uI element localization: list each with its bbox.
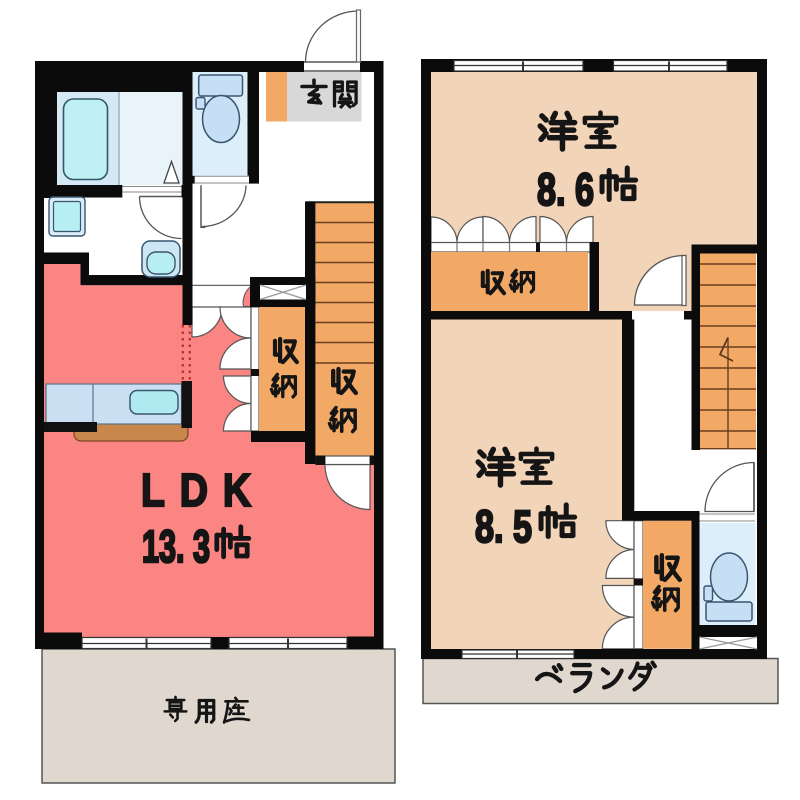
svg-text:13. 3: 13. 3: [142, 522, 210, 572]
svg-text:8. 6: 8. 6: [537, 166, 594, 216]
svg-text:LDK: LDK: [141, 465, 266, 517]
svg-text:8. 5: 8. 5: [475, 503, 532, 553]
